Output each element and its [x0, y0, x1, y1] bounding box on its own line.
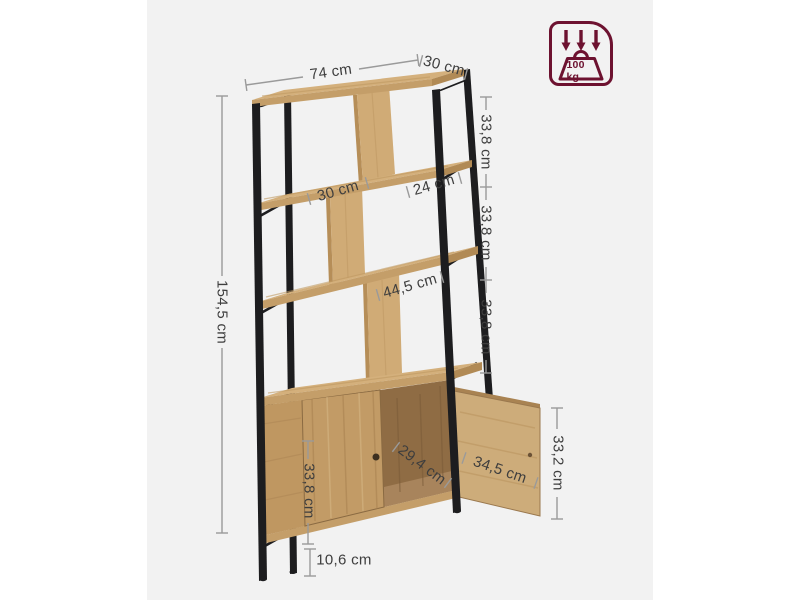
- door-knob: [373, 454, 380, 461]
- max-load-label: 100 kg: [567, 59, 596, 83]
- dim-shelf-gap-3-label: 33,8 cm: [479, 299, 494, 354]
- dim-shelf-gap-2-label: 33,8 cm: [479, 205, 494, 260]
- load-arrows-icon: [562, 30, 601, 51]
- dim-shelf-gap-1-label: 33,8 cm: [479, 114, 494, 169]
- dim-total-height-label: 154,5 cm: [215, 280, 230, 344]
- dim-open-door-height-label: 33,2 cm: [551, 435, 566, 490]
- shelf-dividers: [326, 85, 402, 383]
- dim-leg-clearance-label: 10,6 cm: [316, 553, 371, 568]
- dim-cabinet-door-height-label: 33,8 cm: [302, 463, 317, 518]
- max-load-badge: 100 kg: [549, 21, 613, 86]
- bookshelf-illustration: [0, 0, 800, 600]
- cabinet-door-open: [454, 387, 540, 516]
- door-open-knob: [528, 453, 532, 457]
- product-dimension-diagram: 74 cm 30 cm 154,5 cm 33,8 cm 33,8 cm 33,…: [0, 0, 800, 600]
